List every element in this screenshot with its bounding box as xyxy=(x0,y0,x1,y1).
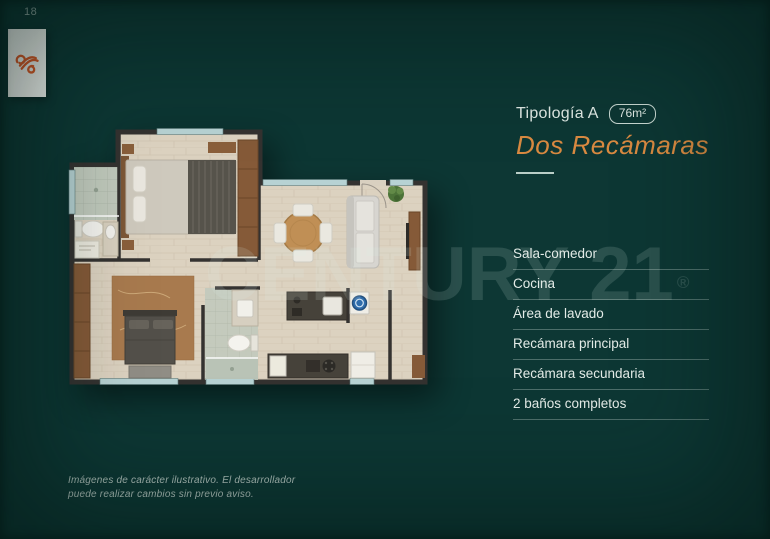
toilet xyxy=(82,221,104,237)
closet xyxy=(74,264,90,378)
typology-label: Tipología A xyxy=(516,105,599,123)
nightstand xyxy=(122,240,134,250)
disclaimer-line: puede realizar cambios sin previo aviso. xyxy=(68,488,295,502)
developer-logo-icon xyxy=(12,48,42,78)
plant xyxy=(388,186,404,202)
typology-subtitle: Dos Recámaras xyxy=(516,130,709,161)
feature-item: Área de lavado xyxy=(513,300,709,330)
disclaimer-line: Imágenes de carácter ilustrativo. El des… xyxy=(68,474,295,488)
hall-cabinet xyxy=(412,355,425,378)
sofa-cushion xyxy=(356,201,374,231)
dishwasher xyxy=(270,356,286,376)
typology-header: Tipología A 76m² Dos Recámaras xyxy=(516,104,709,174)
dresser xyxy=(208,142,236,153)
toilet-tank xyxy=(75,221,82,237)
bed-bench xyxy=(129,366,171,378)
feature-item: Cocina xyxy=(513,270,709,300)
brochure-page: 18 xyxy=(0,0,770,539)
bathroom-primary-floor xyxy=(74,167,119,220)
pillow xyxy=(133,166,146,192)
shower-drain xyxy=(230,367,234,371)
feature-item: Recámara secundaria xyxy=(513,360,709,390)
shower-drain xyxy=(94,188,98,192)
developer-logo-card xyxy=(8,29,46,97)
title-underline xyxy=(516,172,554,174)
bed-headboard xyxy=(123,310,177,316)
pillow xyxy=(153,320,173,329)
area-badge: 76m² xyxy=(609,104,656,124)
dining-chair xyxy=(293,204,313,216)
disclaimer: Imágenes de carácter ilustrativo. El des… xyxy=(68,474,295,502)
toilet xyxy=(228,335,250,351)
toilet-tank xyxy=(251,335,258,351)
feature-item: Sala-comedor xyxy=(513,240,709,270)
page-number: 18 xyxy=(24,6,37,18)
feature-list: Sala-comedor Cocina Área de lavado Recám… xyxy=(513,240,709,420)
pillow xyxy=(129,320,149,329)
feature-item: 2 baños completos xyxy=(513,390,709,420)
nightstand xyxy=(122,144,134,154)
sink xyxy=(106,225,116,239)
stove xyxy=(323,360,336,373)
feature-item: Recámara principal xyxy=(513,330,709,360)
pillow xyxy=(133,196,146,222)
